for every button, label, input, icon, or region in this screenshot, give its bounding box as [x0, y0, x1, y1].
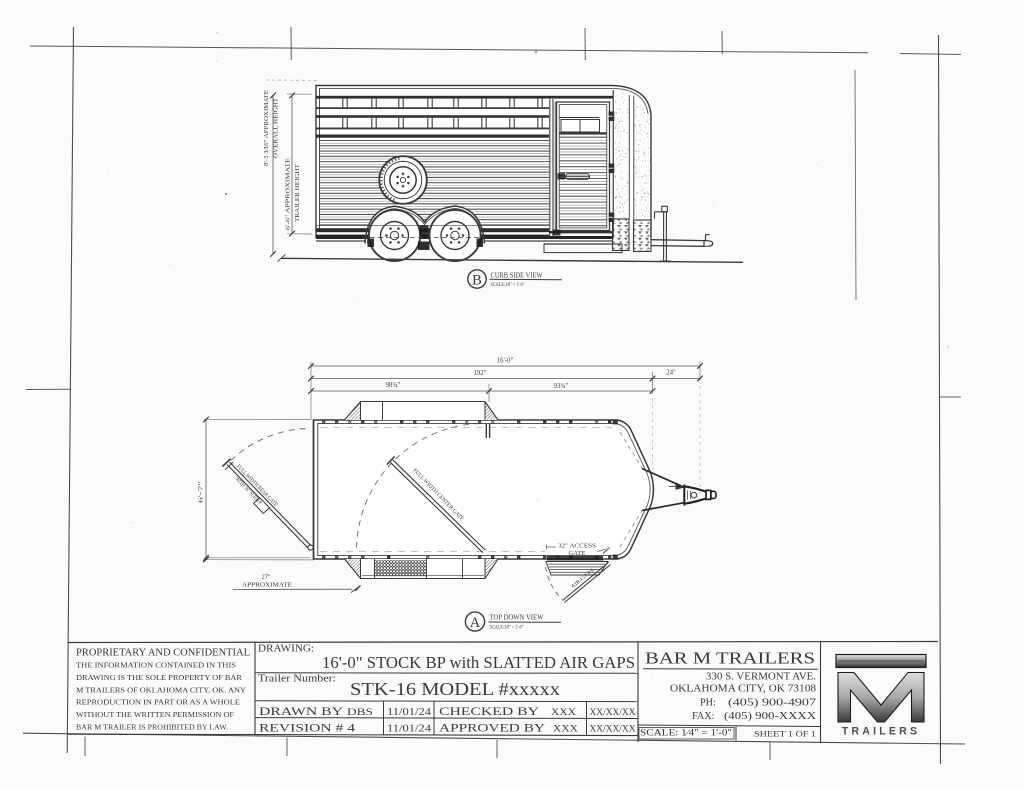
svg-text:(405) 900-4907: (405) 900-4907 — [728, 698, 816, 709]
svg-text:APPROVED BY: APPROVED BY — [439, 722, 546, 735]
svg-text:M TRAILERS OF OKLAHOMA CITY, O: M TRAILERS OF OKLAHOMA CITY, OK. ANY — [76, 685, 247, 694]
svg-text:TRAILERS: TRAILERS — [842, 726, 921, 738]
svg-text:DRAWN BY: DRAWN BY — [259, 705, 344, 718]
svg-text:98¾": 98¾" — [386, 382, 401, 389]
svg-text:32" ACCESS: 32" ACCESS — [558, 543, 596, 550]
svg-text:PH:: PH: — [700, 698, 716, 709]
svg-text:TRAILER HEIGHT: TRAILER HEIGHT — [294, 164, 301, 222]
svg-text:STK-16 MODEL #xxxxx: STK-16 MODEL #xxxxx — [350, 679, 560, 699]
svg-text:6'-7": 6'-7" — [198, 480, 205, 503]
svg-text:16'-0": 16'-0" — [497, 358, 514, 365]
svg-text:24": 24" — [666, 370, 676, 377]
svg-text:WITHOUT THE WRITTEN PERMISSION: WITHOUT THE WRITTEN PERMISSION OF — [76, 710, 234, 719]
svg-text:192": 192" — [474, 370, 487, 377]
svg-text:6'-6" APPROXIMATE: 6'-6" APPROXIMATE — [285, 158, 292, 230]
svg-text:11/01/24: 11/01/24 — [387, 707, 431, 718]
svg-text:REPRODUCTION IN PART OR AS A W: REPRODUCTION IN PART OR AS A WHOLE — [76, 698, 241, 707]
svg-text:DBS: DBS — [347, 707, 373, 718]
svg-text:GATE: GATE — [569, 550, 586, 557]
svg-text:PROPRIETARY AND CONFIDENTIAL: PROPRIETARY AND CONFIDENTIAL — [76, 648, 250, 659]
svg-text:FAX:: FAX: — [692, 711, 714, 722]
svg-text:SCALE: 1⁄4" = 1'-0": SCALE: 1⁄4" = 1'-0" — [640, 728, 732, 738]
svg-text:SHEET 1 OF 1: SHEET 1 OF 1 — [754, 729, 816, 739]
svg-text:XX/XX/XX: XX/XX/XX — [590, 724, 636, 734]
svg-text:CHECKED BY: CHECKED BY — [439, 705, 540, 718]
svg-text:OVERALL HEIGHT: OVERALL HEIGHT — [273, 98, 280, 158]
svg-text:Trailer Number:: Trailer Number: — [258, 674, 336, 685]
svg-text:93¾": 93¾" — [554, 383, 569, 390]
svg-text:OKLAHOMA CITY, OK 73108: OKLAHOMA CITY, OK 73108 — [670, 684, 816, 695]
svg-text:BAR M TRAILERS: BAR M TRAILERS — [645, 649, 815, 668]
svg-text:XX/XX/XX: XX/XX/XX — [590, 707, 636, 717]
svg-text:DRAWING:: DRAWING: — [258, 644, 314, 655]
svg-text:TOP DOWN VIEW: TOP DOWN VIEW — [490, 613, 545, 622]
svg-text:DRAWING IS THE SOLE PROPERTY O: DRAWING IS THE SOLE PROPERTY OF BAR — [76, 673, 242, 682]
svg-text:XXX: XXX — [553, 724, 578, 735]
svg-text:BAR M TRAILER IS PROHIBITED BY: BAR M TRAILER IS PROHIBITED BY LAW. — [76, 723, 228, 732]
svg-text:8'-3 3⁄16" APPROXIMATE: 8'-3 3⁄16" APPROXIMATE — [263, 90, 270, 166]
svg-text:REVISION # 4: REVISION # 4 — [259, 722, 355, 735]
svg-text:A: A — [470, 615, 481, 631]
svg-text:11/01/24: 11/01/24 — [387, 724, 431, 735]
svg-text:SCALE:3⁄8" = 1'-0": SCALE:3⁄8" = 1'-0" — [490, 625, 524, 630]
svg-text:330 S. VERMONT AVE.: 330 S. VERMONT AVE. — [706, 672, 816, 683]
svg-text:XXX: XXX — [551, 707, 576, 718]
svg-text:SCALE:3⁄8" = 1'-0": SCALE:3⁄8" = 1'-0" — [491, 283, 525, 288]
svg-text:16'-0" STOCK BP with SLATTED A: 16'-0" STOCK BP with SLATTED AIR GAPS — [322, 653, 635, 672]
svg-text:(405) 900-XXXX: (405) 900-XXXX — [724, 711, 817, 722]
svg-text:THE INFORMATION CONTAINED IN T: THE INFORMATION CONTAINED IN THIS — [76, 661, 236, 670]
svg-text:27": 27" — [262, 574, 271, 581]
svg-text:CURB SIDE VIEW: CURB SIDE VIEW — [491, 271, 544, 280]
svg-text:APPROXIMATE: APPROXIMATE — [242, 582, 292, 589]
svg-text:B: B — [472, 273, 482, 289]
